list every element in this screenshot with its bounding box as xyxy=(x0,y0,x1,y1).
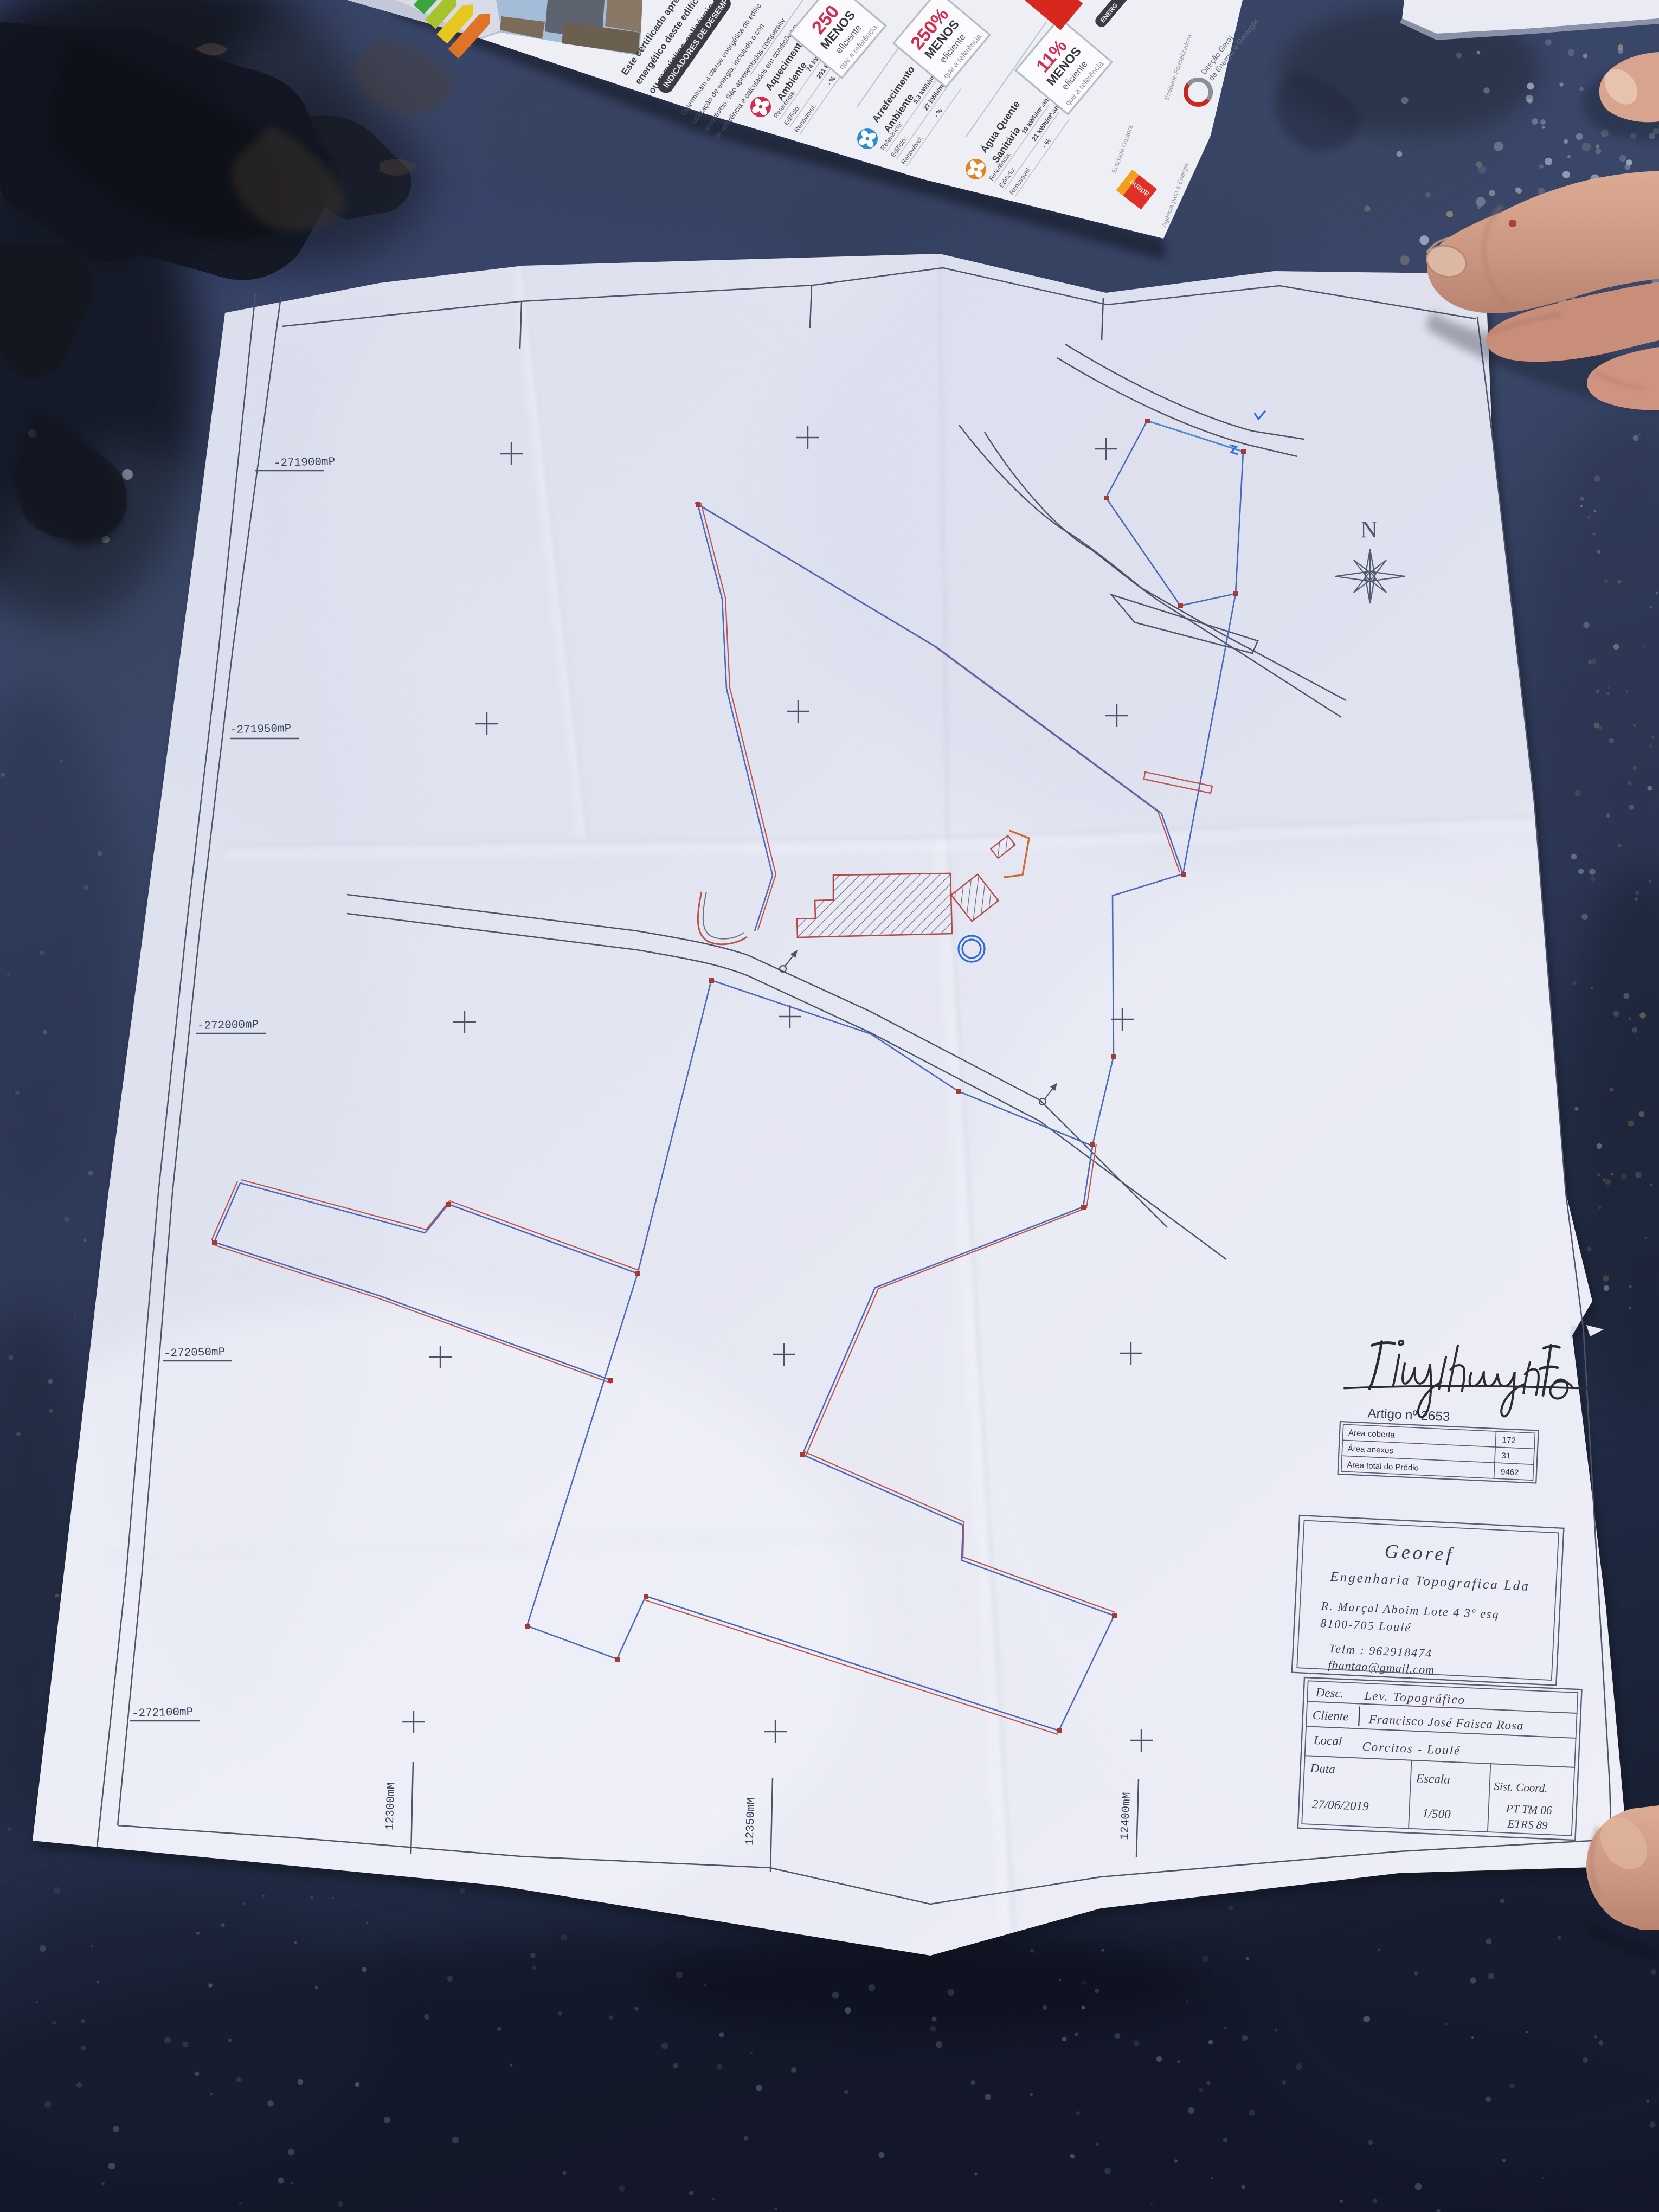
svg-text:Georef: Georef xyxy=(1384,1540,1455,1565)
svg-text:Local: Local xyxy=(1313,1733,1342,1748)
svg-text:12300mM: 12300mM xyxy=(384,1782,398,1830)
svg-text:-271950mP: -271950mP xyxy=(230,723,292,737)
svg-text:12400mM: 12400mM xyxy=(1119,1792,1134,1840)
svg-text:Sist. Coord.: Sist. Coord. xyxy=(1494,1779,1548,1795)
svg-text:9462: 9462 xyxy=(1501,1468,1519,1477)
svg-text:-271900mP: -271900mP xyxy=(274,456,336,470)
svg-text:Escala: Escala xyxy=(1416,1771,1451,1786)
svg-text:Cliente: Cliente xyxy=(1312,1708,1348,1724)
svg-text:-272000mP: -272000mP xyxy=(197,1019,259,1033)
svg-text:-272100mP: -272100mP xyxy=(132,1706,194,1720)
svg-text:PT TM 06: PT TM 06 xyxy=(1505,1802,1552,1817)
svg-text:1/500: 1/500 xyxy=(1422,1806,1451,1821)
svg-text:Desc.: Desc. xyxy=(1315,1686,1344,1700)
svg-text:-272050mP: -272050mP xyxy=(164,1346,226,1360)
svg-text:N: N xyxy=(1360,516,1378,543)
svg-text:31: 31 xyxy=(1501,1451,1510,1461)
svg-text:ETRS 89: ETRS 89 xyxy=(1507,1817,1548,1832)
svg-text:172: 172 xyxy=(1502,1436,1516,1445)
svg-text:27/06/2019: 27/06/2019 xyxy=(1311,1797,1369,1814)
svg-text:12350mM: 12350mM xyxy=(744,1797,758,1846)
svg-text:Data: Data xyxy=(1309,1761,1335,1776)
